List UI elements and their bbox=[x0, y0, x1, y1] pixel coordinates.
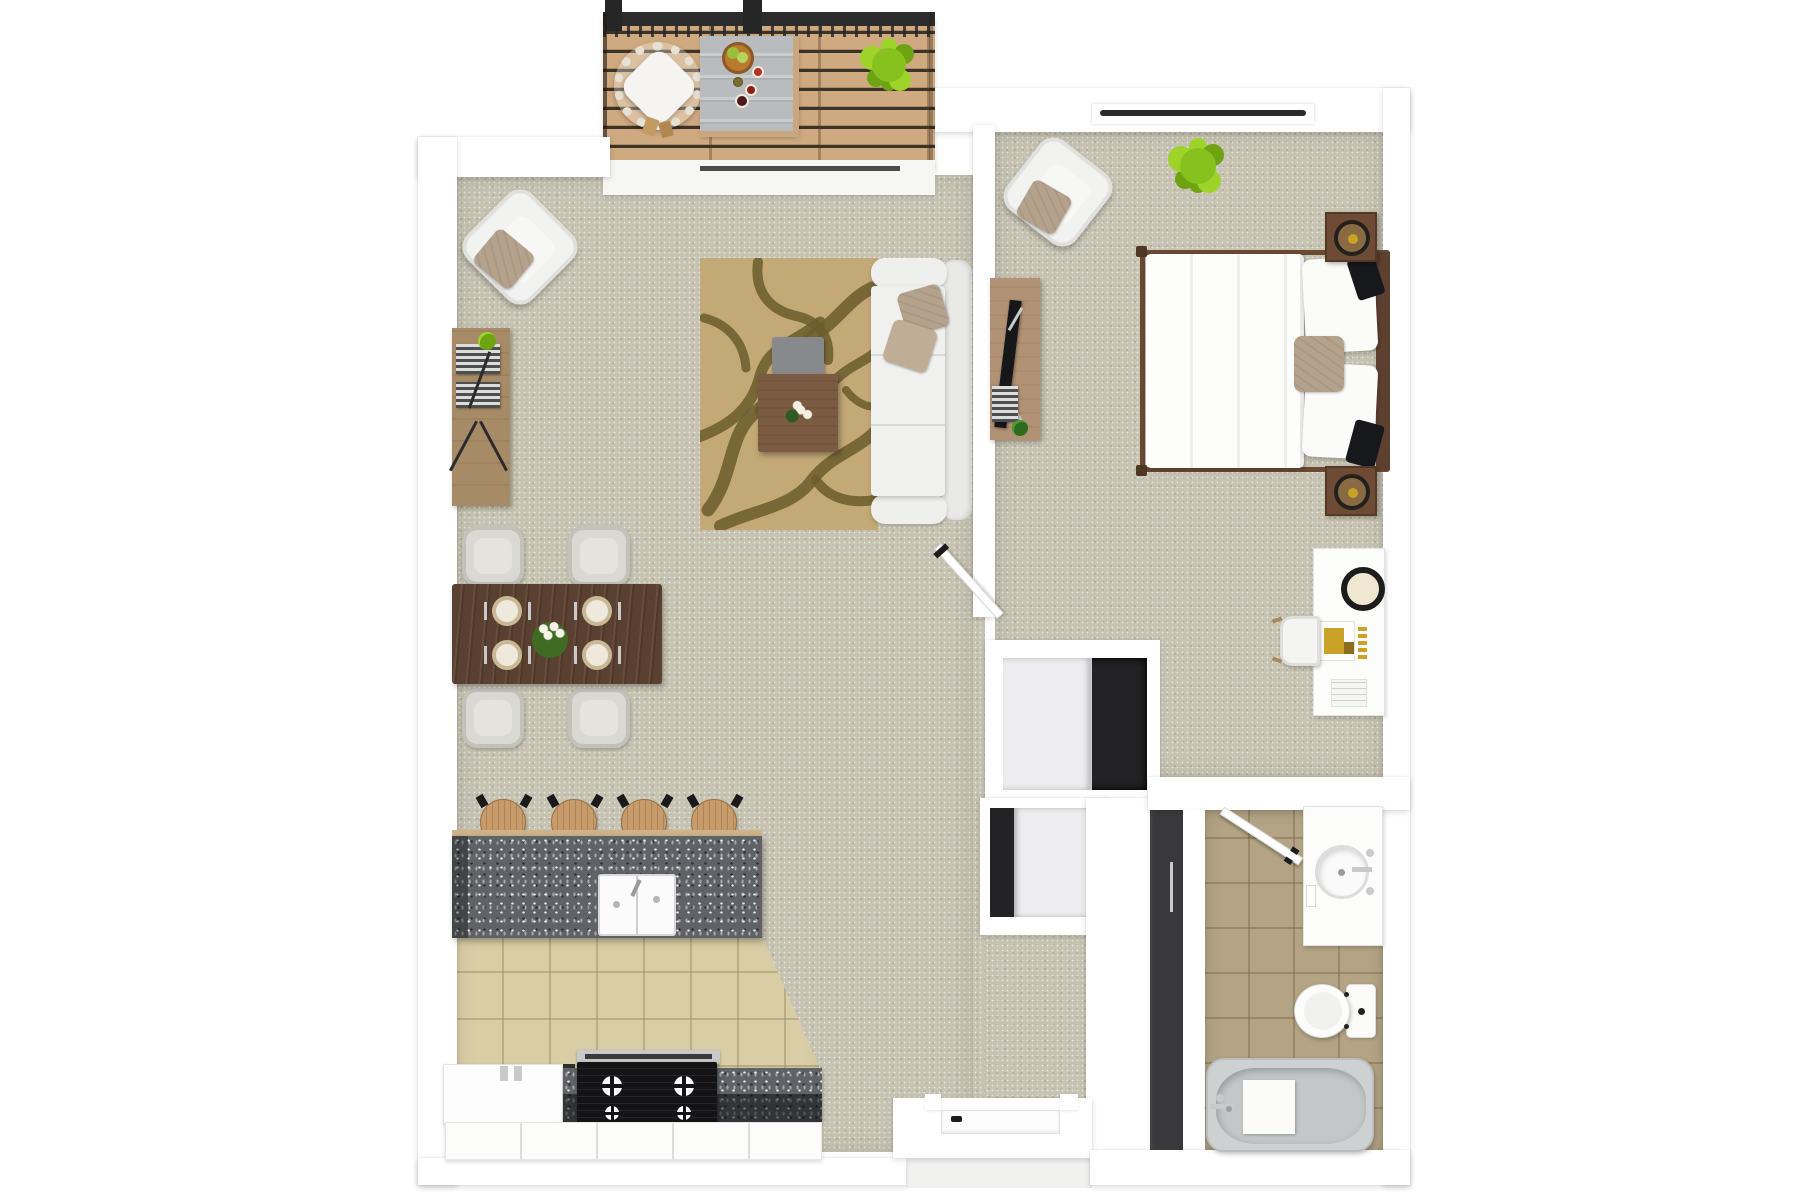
books bbox=[992, 386, 1018, 422]
burner-icon bbox=[602, 1076, 622, 1096]
kiwi-icon bbox=[733, 77, 743, 87]
dining-area bbox=[440, 510, 700, 770]
entry-door-handle bbox=[951, 1116, 962, 1122]
fridge-handle bbox=[500, 1066, 508, 1081]
desk-chair bbox=[1000, 134, 1118, 252]
place-setting bbox=[492, 596, 522, 626]
stool-leg-icon bbox=[731, 794, 744, 808]
sofa-arm bbox=[871, 494, 947, 524]
hall-wall-column bbox=[1086, 798, 1150, 1150]
bathroom-vanity bbox=[1303, 806, 1383, 946]
armchair bbox=[458, 185, 582, 309]
toilet-hinge-icon bbox=[1344, 992, 1349, 997]
entry-door-jamb bbox=[1060, 1094, 1078, 1110]
sofa-back bbox=[942, 260, 972, 520]
gold-decor-set bbox=[1319, 621, 1355, 661]
railing-bracket-icon bbox=[605, 0, 622, 31]
sofa-arm bbox=[871, 258, 947, 288]
dining-chair bbox=[568, 526, 630, 586]
nightstand bbox=[1325, 212, 1377, 262]
floor-plan bbox=[0, 0, 1800, 1200]
bathroom-left-wall bbox=[1183, 810, 1205, 1150]
dining-chair bbox=[568, 688, 630, 748]
place-setting bbox=[582, 640, 612, 670]
faucet-handle-icon bbox=[1366, 887, 1374, 895]
ottoman-tray bbox=[772, 337, 824, 375]
stool-leg-icon bbox=[520, 794, 533, 808]
sliding-balcony-door bbox=[700, 166, 900, 171]
bedroom-fern-plant bbox=[1180, 148, 1216, 184]
cutlery-icon bbox=[484, 646, 487, 664]
fridge-handle bbox=[514, 1066, 522, 1081]
toilet bbox=[1290, 980, 1380, 1042]
toilet-hinge-icon bbox=[1344, 1024, 1349, 1029]
deck-edge bbox=[929, 13, 933, 165]
faucet-spout-icon bbox=[1352, 867, 1372, 872]
bed-post-icon bbox=[1136, 246, 1147, 257]
double-bed bbox=[1136, 246, 1392, 476]
sink-drain-icon bbox=[1338, 869, 1345, 876]
bed-post-icon bbox=[1136, 465, 1147, 476]
books bbox=[456, 344, 500, 374]
entry-door-jamb bbox=[925, 1094, 941, 1110]
chair-cushion bbox=[580, 538, 618, 574]
place-setting bbox=[492, 640, 522, 670]
dining-chair bbox=[462, 688, 524, 748]
outdoor-table-rim bbox=[700, 131, 799, 137]
base-cabinets bbox=[445, 1122, 822, 1160]
vanity-stool bbox=[1280, 616, 1320, 666]
cutlery-icon bbox=[528, 646, 531, 664]
papers bbox=[1331, 679, 1367, 707]
bar-shade bbox=[452, 836, 468, 938]
vanity-mirror bbox=[1341, 567, 1385, 611]
lime-icon bbox=[737, 52, 748, 63]
entry-hall-floor bbox=[985, 933, 1086, 1098]
sink-drain-icon bbox=[613, 901, 620, 908]
burner-icon bbox=[605, 1106, 619, 1120]
railing-bracket-icon bbox=[743, 0, 762, 33]
nightstand-knob-icon bbox=[1348, 488, 1358, 498]
bath-mat bbox=[1243, 1080, 1295, 1134]
stool-leg-icon bbox=[591, 794, 604, 808]
console-plant-icon bbox=[478, 332, 496, 350]
drink-cup-icon bbox=[745, 84, 757, 96]
tub-drain-icon bbox=[1226, 1106, 1232, 1112]
pocket-door-handle bbox=[1170, 862, 1173, 912]
dining-chair bbox=[462, 526, 524, 586]
railing bbox=[603, 12, 935, 26]
cutlery-icon bbox=[618, 646, 621, 664]
cutlery-icon bbox=[574, 646, 577, 664]
bottom-wall-right bbox=[1090, 1150, 1410, 1185]
window-vent bbox=[1100, 110, 1306, 116]
cutlery-icon bbox=[574, 602, 577, 620]
cutlery-icon bbox=[484, 602, 487, 620]
soap-dispenser-icon bbox=[1306, 885, 1316, 907]
place-setting bbox=[582, 596, 612, 626]
coffee-table-flowers bbox=[782, 398, 816, 428]
drink-cup-icon bbox=[735, 94, 749, 108]
flower-blooms-icon bbox=[536, 620, 566, 642]
gas-stove bbox=[577, 1062, 717, 1124]
entry-door bbox=[941, 1110, 1060, 1134]
faucet-handle-icon bbox=[1366, 849, 1374, 857]
nightstand-knob-icon bbox=[1348, 234, 1358, 244]
chair-cushion bbox=[580, 700, 618, 736]
vanity-desk bbox=[1313, 548, 1385, 716]
console-plant-icon bbox=[1012, 420, 1028, 436]
cutlery-icon bbox=[618, 602, 621, 620]
porch-step bbox=[906, 1158, 1092, 1188]
drink-cup-icon bbox=[752, 66, 764, 78]
duvet bbox=[1146, 254, 1304, 468]
nightstand bbox=[1325, 466, 1377, 516]
gold-text-icon bbox=[1358, 625, 1367, 659]
pocket-door bbox=[1150, 808, 1186, 1150]
accent-pillow-tan bbox=[1294, 336, 1344, 392]
tub-faucet-icon bbox=[1216, 1094, 1224, 1102]
sofa bbox=[869, 258, 975, 524]
sink-drain-icon bbox=[653, 896, 660, 903]
bathtub bbox=[1206, 1058, 1374, 1152]
chair-cushion bbox=[474, 700, 512, 736]
linen-closet-panel bbox=[1014, 808, 1093, 917]
burner-icon bbox=[677, 1106, 691, 1120]
toilet-seat bbox=[1304, 992, 1342, 1030]
toilet-flush-icon bbox=[1358, 1008, 1365, 1015]
burner-icon bbox=[674, 1076, 694, 1096]
chair-cushion bbox=[474, 538, 512, 574]
cutlery-icon bbox=[528, 602, 531, 620]
outdoor-table-rim bbox=[793, 36, 799, 137]
balcony-fern-plant bbox=[872, 48, 906, 82]
closet-door-track bbox=[1090, 658, 1092, 790]
range-hood-slot bbox=[585, 1054, 712, 1059]
walk-in-closet-sliding-panel bbox=[1003, 658, 1092, 790]
stool-leg-icon bbox=[661, 794, 674, 808]
